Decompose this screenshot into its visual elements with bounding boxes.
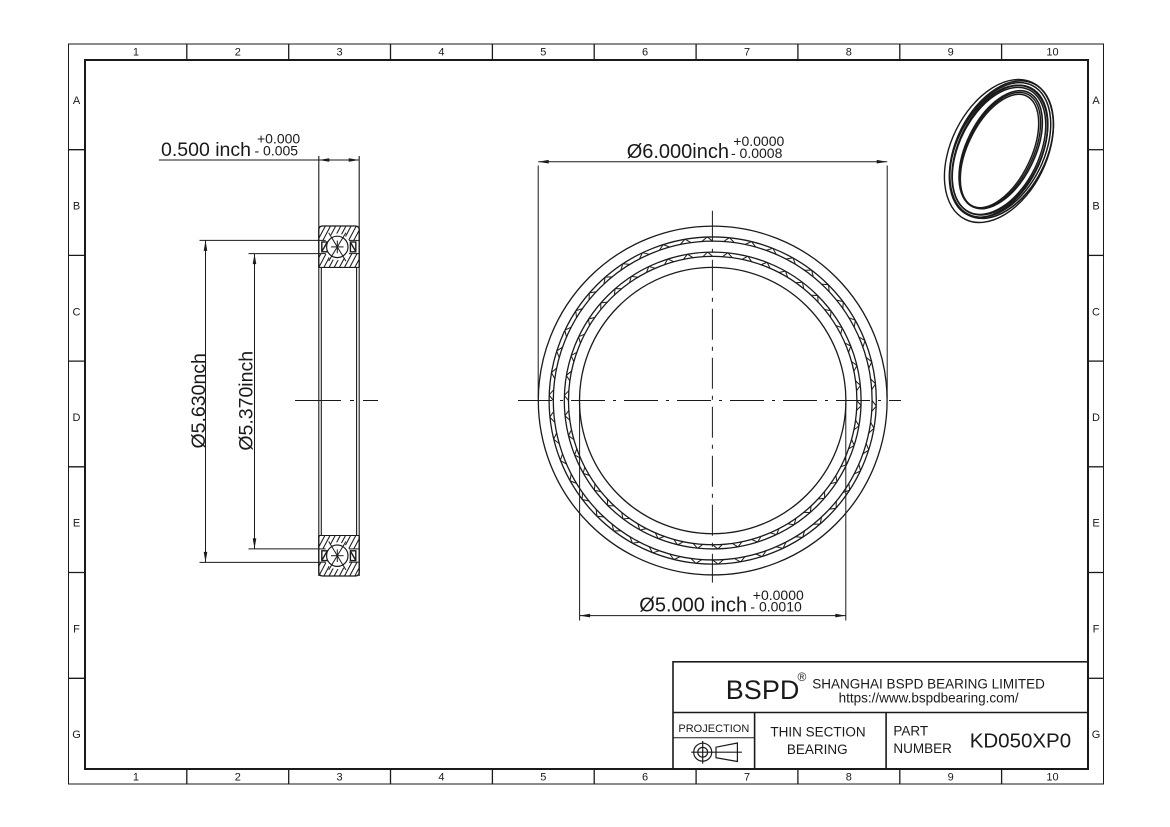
svg-text:G: G bbox=[1092, 729, 1101, 741]
svg-text:2: 2 bbox=[235, 47, 241, 59]
svg-text:5: 5 bbox=[540, 47, 546, 59]
svg-text:F: F bbox=[73, 623, 80, 635]
svg-text:0.500 inch: 0.500 inch bbox=[161, 139, 251, 161]
svg-text:Ø6.000inch: Ø6.000inch bbox=[627, 141, 729, 163]
svg-text:A: A bbox=[73, 95, 81, 107]
svg-text:D: D bbox=[73, 412, 81, 424]
svg-text:3: 3 bbox=[337, 47, 343, 59]
svg-text:PROJECTION: PROJECTION bbox=[678, 723, 749, 735]
svg-text:7: 7 bbox=[744, 47, 750, 59]
svg-text:1: 1 bbox=[133, 47, 139, 59]
svg-text:1: 1 bbox=[133, 772, 139, 784]
svg-text:9: 9 bbox=[948, 47, 954, 59]
svg-text:BEARING: BEARING bbox=[787, 742, 848, 757]
svg-text:4: 4 bbox=[438, 772, 444, 784]
svg-text:BSPD: BSPD bbox=[726, 675, 800, 705]
svg-text:- 0.0008: - 0.0008 bbox=[731, 145, 783, 161]
svg-text:8: 8 bbox=[846, 47, 852, 59]
svg-text:THIN SECTION: THIN SECTION bbox=[770, 725, 865, 740]
svg-text:B: B bbox=[1092, 201, 1099, 213]
svg-text:9: 9 bbox=[948, 772, 954, 784]
svg-text:Ø5.630nch: Ø5.630nch bbox=[188, 353, 210, 448]
svg-text:®: ® bbox=[798, 670, 807, 684]
svg-text:C: C bbox=[73, 306, 81, 318]
svg-text:NUMBER: NUMBER bbox=[893, 741, 952, 756]
svg-text:10: 10 bbox=[1046, 47, 1058, 59]
svg-text:- 0.0010: - 0.0010 bbox=[750, 599, 802, 615]
svg-text:PART: PART bbox=[893, 724, 928, 739]
svg-text:10: 10 bbox=[1046, 772, 1058, 784]
svg-text:E: E bbox=[73, 518, 80, 530]
svg-text:Ø5.370inch: Ø5.370inch bbox=[236, 351, 258, 451]
svg-text:F: F bbox=[1093, 623, 1100, 635]
svg-text:3: 3 bbox=[337, 772, 343, 784]
svg-text:B: B bbox=[73, 201, 80, 213]
svg-text:6: 6 bbox=[642, 47, 648, 59]
svg-text:Ø5.000 inch: Ø5.000 inch bbox=[639, 595, 747, 617]
svg-text:https://www.bspdbearing.com/: https://www.bspdbearing.com/ bbox=[839, 691, 1019, 706]
svg-text:C: C bbox=[1092, 306, 1100, 318]
svg-text:D: D bbox=[1092, 412, 1100, 424]
svg-text:6: 6 bbox=[642, 772, 648, 784]
svg-text:SHANGHAI BSPD BEARING LIMITED: SHANGHAI BSPD BEARING LIMITED bbox=[812, 677, 1045, 692]
svg-text:4: 4 bbox=[438, 47, 444, 59]
svg-text:A: A bbox=[1092, 95, 1100, 107]
svg-text:2: 2 bbox=[235, 772, 241, 784]
svg-text:5: 5 bbox=[540, 772, 546, 784]
svg-text:G: G bbox=[72, 729, 81, 741]
svg-text:8: 8 bbox=[846, 772, 852, 784]
svg-text:KD050XP0: KD050XP0 bbox=[970, 730, 1071, 753]
svg-text:E: E bbox=[1092, 518, 1099, 530]
svg-text:7: 7 bbox=[744, 772, 750, 784]
svg-text:- 0.005: - 0.005 bbox=[255, 143, 299, 159]
